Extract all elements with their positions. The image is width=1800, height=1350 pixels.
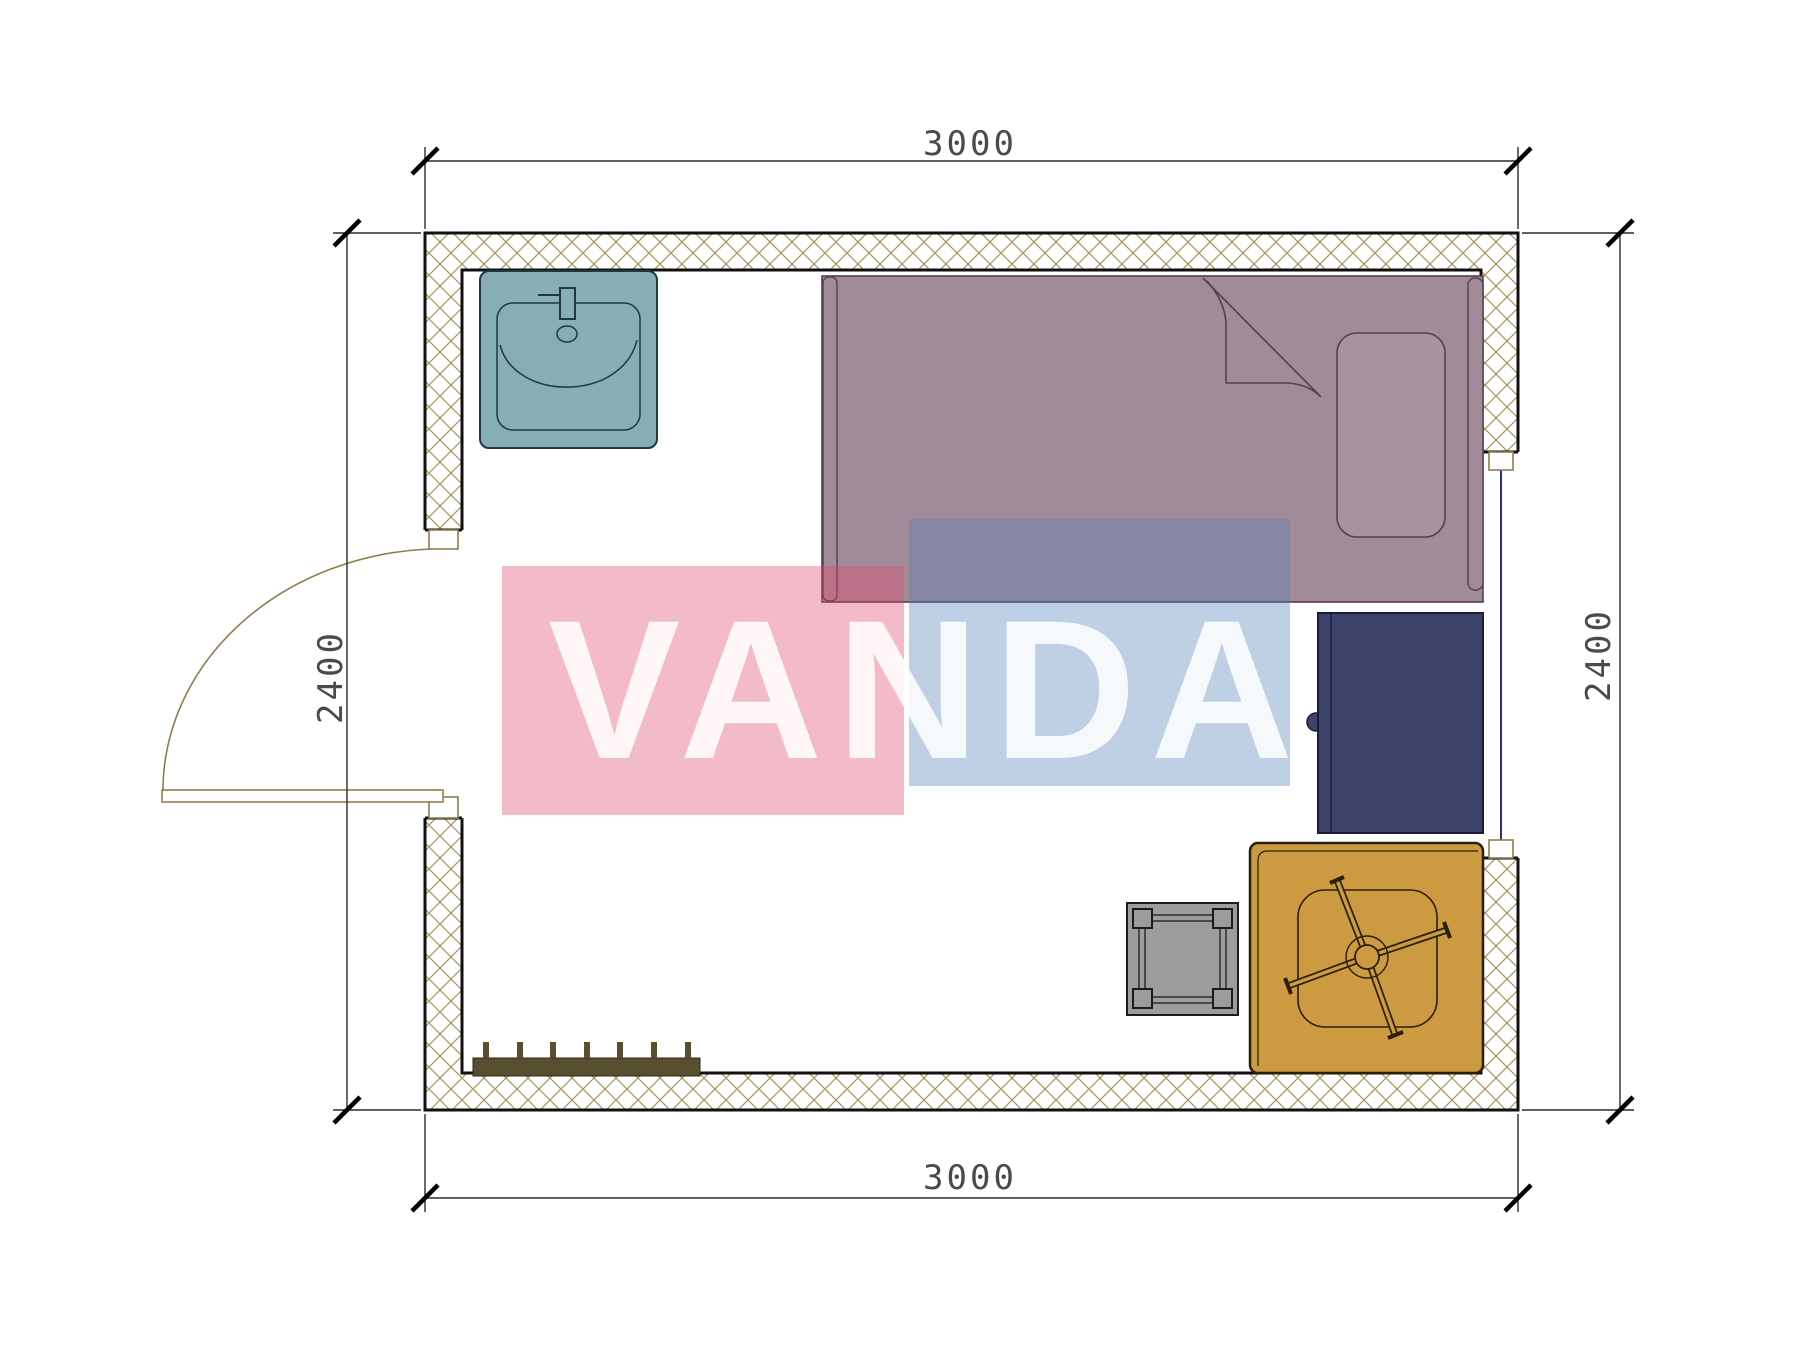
wall-top (425, 233, 1518, 270)
dimension-label-top: 3000 (885, 124, 1055, 164)
door-leaf (162, 790, 443, 802)
radiator-bar (473, 1058, 700, 1076)
bed-footboard (823, 277, 837, 601)
radiator (473, 1042, 700, 1076)
sink-faucet (560, 288, 575, 319)
bed-headboard (1468, 278, 1483, 590)
floor-plan-page: VANDA 3000 3000 2400 2400 (0, 0, 1800, 1350)
desk-with-office-chair (1250, 843, 1483, 1073)
window-jamb-bottom (1489, 840, 1513, 858)
pillow (1337, 333, 1445, 537)
wall-bottom (425, 1073, 1518, 1110)
door-jamb-top (429, 530, 458, 549)
dimension-label-bottom: 3000 (885, 1158, 1055, 1198)
dimension-label-right: 2400 (1579, 570, 1619, 740)
chair-hub (1355, 945, 1379, 969)
door-opening (419, 530, 468, 818)
swing-door (162, 530, 458, 818)
wardrobe (1307, 613, 1483, 833)
sink (480, 271, 657, 448)
dimension-label-left: 2400 (311, 592, 351, 762)
door-swing-arc (163, 549, 431, 790)
wardrobe-body (1318, 613, 1483, 833)
window-jamb-top (1489, 452, 1513, 470)
watermark-text: VANDA (548, 591, 1308, 789)
stool (1127, 903, 1238, 1015)
radiator-fins (483, 1042, 691, 1058)
